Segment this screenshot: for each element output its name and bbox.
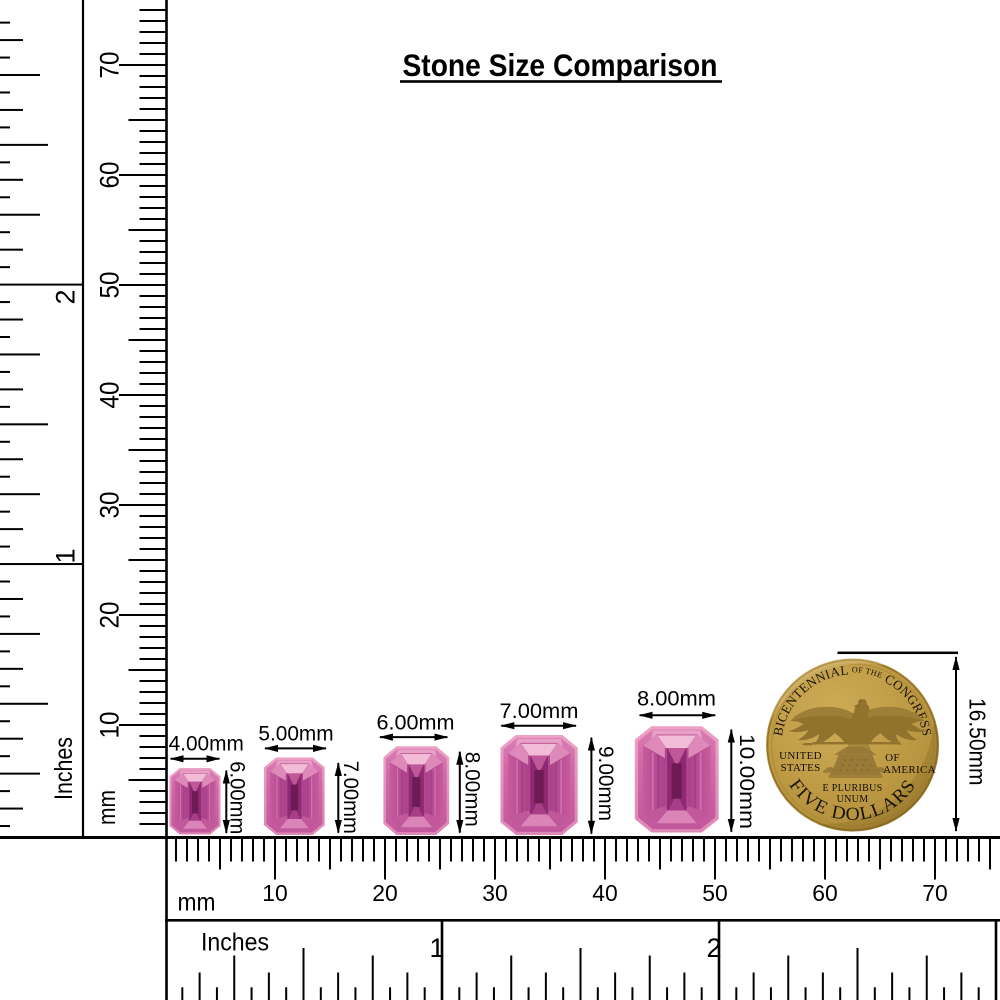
svg-text:40: 40 <box>592 880 618 906</box>
svg-text:7.00mm: 7.00mm <box>339 761 363 834</box>
svg-text:2: 2 <box>706 933 721 963</box>
svg-text:1: 1 <box>429 933 444 963</box>
svg-text:8.00mm: 8.00mm <box>461 752 485 827</box>
svg-text:10: 10 <box>262 880 288 906</box>
svg-text:10: 10 <box>95 712 125 739</box>
svg-text:50: 50 <box>95 272 125 299</box>
svg-text:UNITED: UNITED <box>779 750 822 762</box>
svg-text:40: 40 <box>95 382 125 409</box>
svg-text:UNUM: UNUM <box>837 794 869 805</box>
svg-text:E PLURIBUS: E PLURIBUS <box>823 783 883 794</box>
svg-text:8.00mm: 8.00mm <box>637 686 716 710</box>
svg-text:50: 50 <box>702 880 728 906</box>
svg-text:10.00mm: 10.00mm <box>735 734 759 829</box>
svg-text:30: 30 <box>95 492 125 519</box>
svg-text:70: 70 <box>95 52 125 79</box>
svg-text:6.00mm: 6.00mm <box>226 761 250 834</box>
svg-text:20: 20 <box>95 602 125 629</box>
svg-text:7.00mm: 7.00mm <box>500 699 579 723</box>
svg-text:Stone Size Comparison: Stone Size Comparison <box>403 47 718 83</box>
svg-text:60: 60 <box>95 162 125 189</box>
svg-text:STATES: STATES <box>780 762 820 774</box>
svg-text:30: 30 <box>482 880 508 906</box>
svg-text:20: 20 <box>372 880 398 906</box>
svg-text:4.00mm: 4.00mm <box>169 732 244 756</box>
svg-text:60: 60 <box>812 880 838 906</box>
svg-text:AMERICA: AMERICA <box>883 764 936 776</box>
svg-text:Inches: Inches <box>201 929 269 957</box>
svg-text:5.00mm: 5.00mm <box>258 722 333 746</box>
svg-text:mm: mm <box>178 889 216 917</box>
svg-text:Inches: Inches <box>50 737 78 800</box>
svg-text:16.50mm: 16.50mm <box>965 698 991 786</box>
svg-text:6.00mm: 6.00mm <box>377 710 455 734</box>
svg-text:70: 70 <box>922 880 948 906</box>
svg-text:mm: mm <box>94 790 121 825</box>
svg-text:OF: OF <box>885 752 900 764</box>
svg-text:1: 1 <box>51 548 81 563</box>
svg-text:9.00mm: 9.00mm <box>594 746 618 821</box>
svg-text:2: 2 <box>51 289 81 304</box>
